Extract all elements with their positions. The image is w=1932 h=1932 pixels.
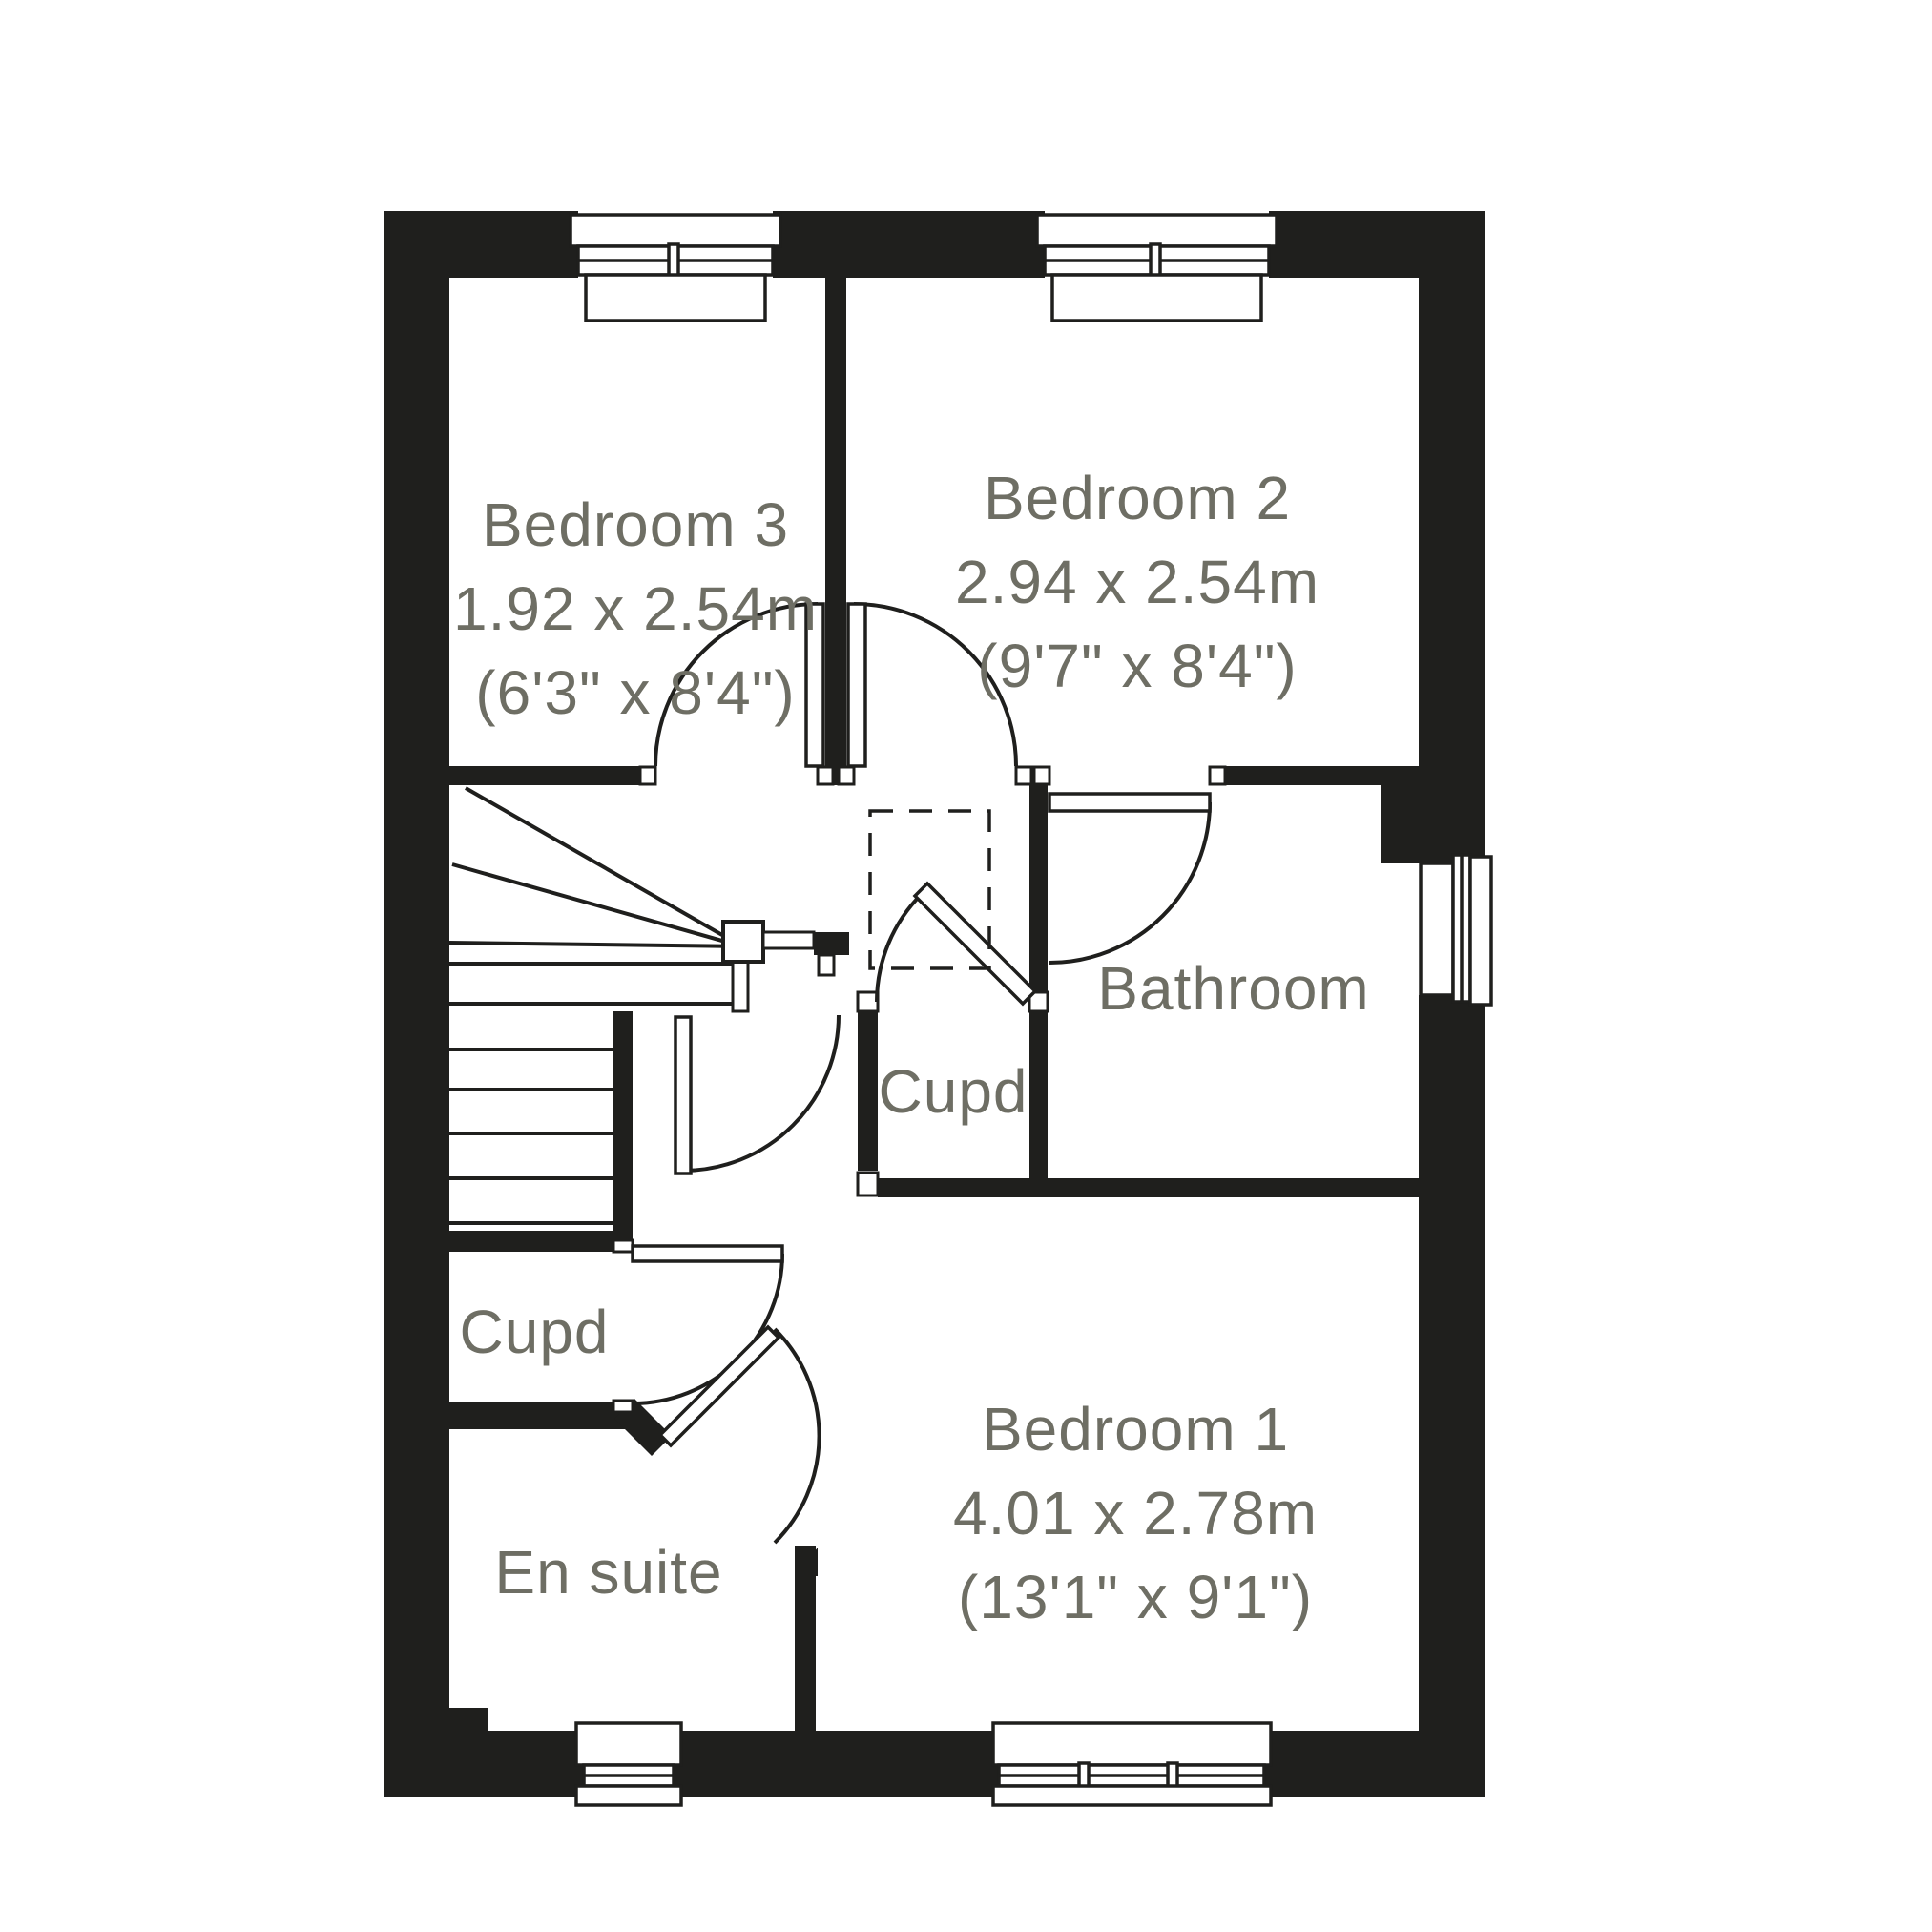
jamb-understairs-cupboard-top [613, 1240, 633, 1252]
window-outer-frame [576, 1786, 681, 1805]
floor-plan: Bedroom 3 1.92 x 2.54m (6'3" x 8'4") Bed… [0, 0, 1932, 1932]
window-mullion [1151, 244, 1160, 277]
label-bedroom3-name: Bedroom 3 [482, 490, 789, 559]
wall-left [384, 211, 449, 1797]
floor-plan-svg: Bedroom 3 1.92 x 2.54m (6'3" x 8'4") Bed… [0, 0, 1932, 1932]
window-outer-frame [571, 215, 780, 246]
wall-ensuite-north [449, 1402, 634, 1429]
wall-bathroom-window-pier [1381, 785, 1419, 863]
window-outer-frame [1037, 215, 1277, 246]
wall-stairs-east [613, 1011, 633, 1243]
window-board [1052, 275, 1261, 321]
stair-winder-line [449, 943, 742, 946]
stair-handrail-end-block [814, 932, 849, 955]
window-outer-frame [993, 1786, 1271, 1805]
wall-bathroom-west-upper [1029, 785, 1048, 992]
stair-handrail-horizontal [763, 932, 814, 948]
door-arc-bedroom1 [683, 1015, 839, 1171]
label-bedroom1-metric: 4.01 x 2.78m [953, 1479, 1318, 1548]
stair-winder-line [466, 788, 742, 946]
door-leaf-cupboard-understairs [633, 1246, 782, 1261]
wall-bottom-mid-segment [674, 1731, 999, 1797]
label-cupboard-understairs: Cupd [460, 1298, 610, 1366]
label-bedroom1-imperial: (13'1" x 9'1") [958, 1563, 1313, 1631]
label-cupboard-landing: Cupd [879, 1057, 1028, 1126]
window-mullion [1168, 1763, 1177, 1788]
label-bathroom: Bathroom [1097, 954, 1369, 1023]
label-bedroom3-metric: 1.92 x 2.54m [453, 574, 818, 643]
door-arc-cupboard-landing [877, 894, 922, 1002]
label-bedroom1-name: Bedroom 1 [982, 1395, 1289, 1464]
window-bedroom1 [993, 1723, 1271, 1805]
door-arc-cupboard-understairs [633, 1254, 782, 1403]
wall-landing-north-left [449, 766, 655, 785]
stair-handrail-return [819, 955, 834, 975]
jamb-bathroom-right [1210, 767, 1225, 784]
window-board [1421, 863, 1453, 995]
wall-bedroom2-bedroom3-divider [825, 278, 846, 766]
window-bedroom3 [571, 215, 780, 321]
wall-understairs-cupboard-north [449, 1231, 633, 1252]
wall-bottom-right-segment [1264, 1731, 1485, 1797]
label-bedroom2-imperial: (9'7" x 8'4") [977, 632, 1297, 700]
door-leaf-ensuite [660, 1327, 779, 1445]
window-board [993, 1723, 1271, 1765]
stair-string [733, 960, 748, 1011]
label-bedroom2-name: Bedroom 2 [984, 464, 1291, 532]
label-bedroom3-imperial: (6'3" x 8'4") [475, 658, 795, 727]
stair-winder-line [452, 864, 742, 946]
door-leaf-cupboard-landing [915, 883, 1035, 1004]
jamb-bedroom1-doorway [858, 1173, 878, 1195]
window-ensuite [576, 1723, 681, 1805]
wall-cupboard-landing-west [858, 1011, 878, 1171]
window-mullion [669, 244, 678, 277]
stair-newel-post [723, 922, 763, 962]
door-arc-bathroom [1049, 802, 1210, 963]
wall-right-upper-segment [1419, 211, 1485, 863]
wall-bathroom-west-lower [1029, 1011, 1048, 1178]
label-ensuite: En suite [494, 1538, 722, 1607]
jamb-understairs-cupboard-bottom [613, 1401, 633, 1412]
wall-right-lower-segment [1419, 995, 1485, 1797]
door-leaf-bathroom [1049, 794, 1210, 811]
wall-bottom-left-step [449, 1708, 488, 1797]
window-board [586, 275, 765, 321]
jamb-cupboard-landing-left [858, 992, 878, 1011]
window-outer-frame [1470, 857, 1491, 1005]
label-bedroom2-metric: 2.94 x 2.54m [955, 548, 1319, 616]
jamb-bedroom3-left [640, 767, 655, 784]
window-board [576, 1723, 681, 1765]
door-leaf-bedroom2 [848, 604, 865, 766]
jamb-bedroom2-right [1016, 767, 1031, 784]
wall-bedroom1-north [878, 1178, 1419, 1197]
window-bathroom [1421, 855, 1491, 1005]
jamb-bedroom2-left [839, 767, 854, 784]
door-leaf-bedroom1 [675, 1017, 691, 1174]
staircase [449, 788, 849, 1223]
door-arc-ensuite [775, 1329, 820, 1543]
window-bedroom2 [1037, 215, 1277, 321]
jamb-bedroom3-right [818, 767, 833, 784]
window-mullion [1079, 1763, 1089, 1788]
jamb-bathroom-left [1034, 767, 1049, 784]
wall-top-mid-segment [773, 211, 1045, 278]
wall-bathroom-north [1210, 766, 1419, 785]
